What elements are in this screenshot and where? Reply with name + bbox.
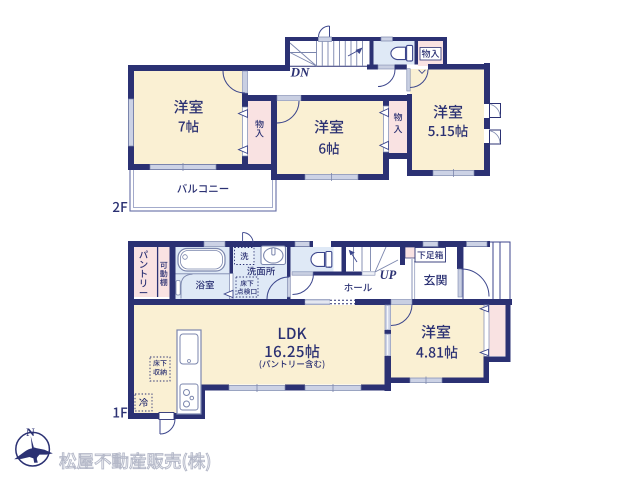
- svg-text:DN: DN: [290, 65, 310, 80]
- svg-text:N: N: [26, 425, 35, 439]
- svg-text:UP: UP: [380, 268, 397, 282]
